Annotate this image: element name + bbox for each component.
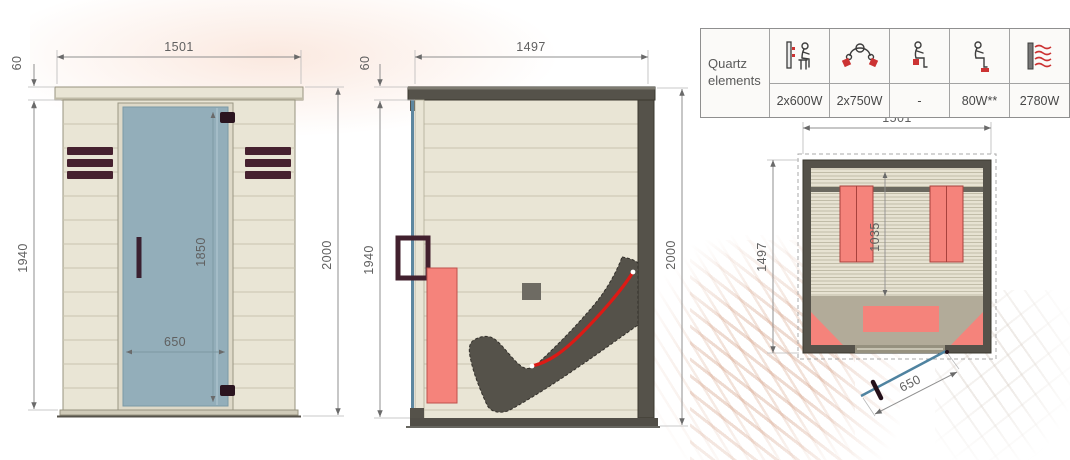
dim-front-height: 1940 bbox=[16, 243, 30, 272]
dim-side-height: 1940 bbox=[362, 245, 376, 274]
dim-top-depth: 1497 bbox=[755, 242, 769, 271]
quartz-cell-back-heater bbox=[769, 29, 829, 83]
dim-door-height: 1850 bbox=[194, 237, 208, 266]
calf-heater-icon bbox=[839, 39, 881, 73]
quartz-value-calf: 2x750W bbox=[829, 83, 889, 117]
front-roof bbox=[55, 87, 303, 100]
quartz-value-seat: - bbox=[889, 83, 949, 117]
top-view: 1501 1497 1035 650 bbox=[745, 110, 1070, 460]
side-base bbox=[406, 418, 660, 427]
side-view: 1497 60 1940 2000 bbox=[360, 0, 710, 460]
quartz-value-back: 2x600W bbox=[769, 83, 829, 117]
quartz-elements-table: Quartz elements bbox=[700, 28, 1070, 118]
side-roof bbox=[408, 87, 655, 100]
door-hinge-bottom bbox=[220, 385, 235, 396]
quartz-value-foot: 80W** bbox=[949, 83, 1009, 117]
dim-side-roof: 60 bbox=[358, 56, 372, 71]
quartz-cell-calf-heater bbox=[829, 29, 889, 83]
sauna-technical-drawing: 1501 60 1940 2000 1850 650 bbox=[0, 0, 1070, 460]
back-heater-icon bbox=[779, 39, 821, 73]
seat-heater-icon bbox=[899, 39, 941, 73]
dim-door-width: 650 bbox=[164, 335, 186, 349]
front-heater-panel bbox=[427, 268, 457, 403]
quartz-cell-total-radiation bbox=[1009, 29, 1069, 83]
total-radiation-icon bbox=[1019, 39, 1061, 73]
quartz-value-total: 2780W bbox=[1009, 83, 1069, 117]
front-door bbox=[118, 103, 235, 410]
front-base bbox=[57, 410, 301, 417]
door-hinge-top bbox=[220, 112, 235, 123]
side-door-edge bbox=[410, 100, 424, 418]
dim-front-total-height: 2000 bbox=[320, 240, 334, 269]
dim-side-depth: 1497 bbox=[516, 40, 545, 54]
vent-slats-left bbox=[67, 147, 113, 179]
dim-bench-depth: 1035 bbox=[868, 222, 882, 251]
quartz-cell-seat-heater bbox=[889, 29, 949, 83]
door-glass-edge bbox=[411, 100, 414, 418]
dim-front-roof: 60 bbox=[10, 56, 24, 71]
dim-side-total-height: 2000 bbox=[664, 240, 678, 269]
dim-front-width: 1501 bbox=[164, 40, 193, 54]
top-floor bbox=[811, 296, 983, 345]
side-back-wall bbox=[638, 100, 654, 418]
floor-heater bbox=[863, 306, 939, 332]
vent-slats-right bbox=[245, 147, 291, 179]
foot-heater-icon bbox=[959, 39, 1001, 73]
control-box bbox=[522, 283, 541, 300]
front-view: 1501 60 1940 2000 1850 650 bbox=[0, 0, 360, 460]
door-handle bbox=[137, 237, 142, 278]
quartz-table-header: Quartz elements bbox=[701, 29, 769, 117]
quartz-cell-foot-heater bbox=[949, 29, 1009, 83]
